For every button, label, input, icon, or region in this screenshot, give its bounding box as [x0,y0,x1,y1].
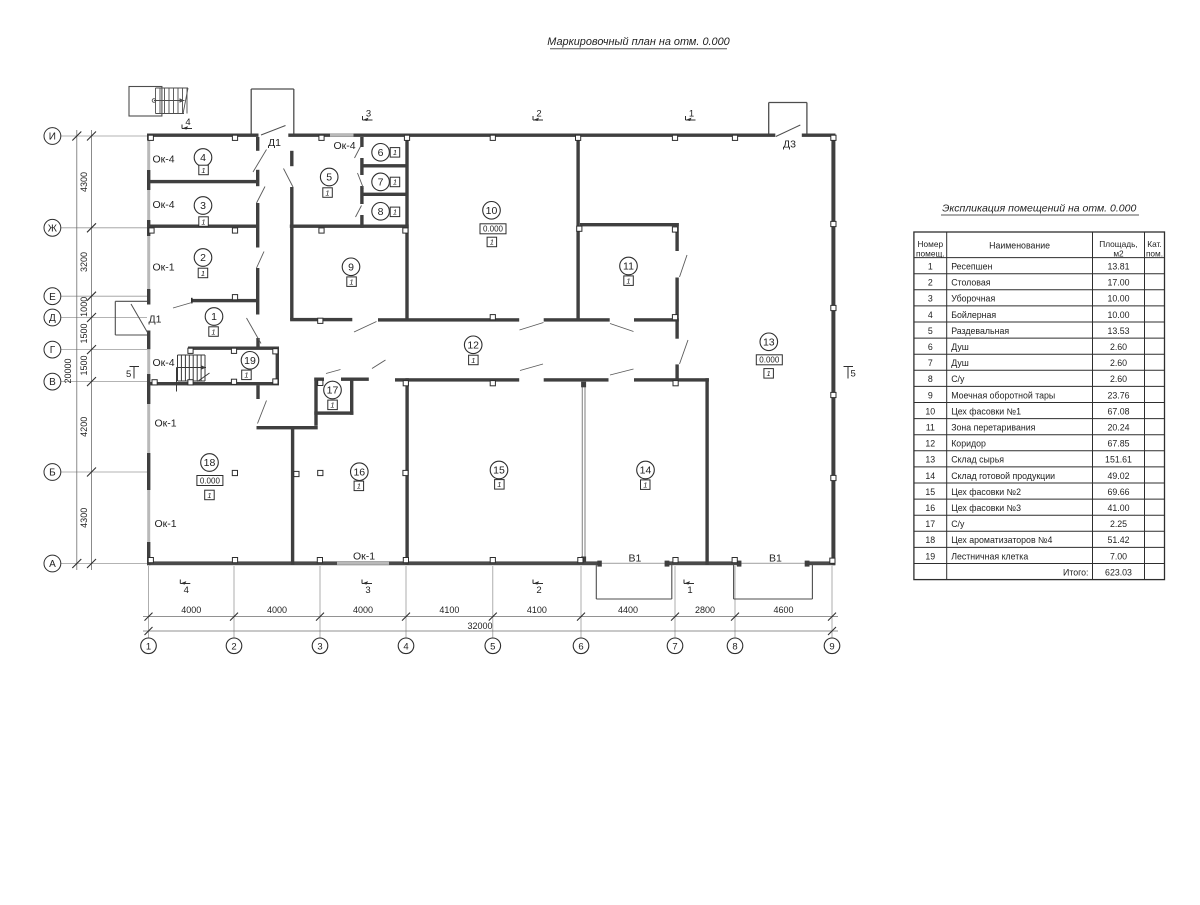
svg-text:Душ: Душ [951,358,969,368]
svg-text:5: 5 [126,369,131,380]
svg-text:16: 16 [925,503,935,513]
svg-text:3: 3 [928,294,933,304]
svg-text:4600: 4600 [773,605,793,615]
svg-text:2.25: 2.25 [1110,519,1127,529]
svg-text:Ок-4: Ок-4 [153,357,175,369]
svg-text:1: 1 [471,356,475,365]
svg-text:4400: 4400 [618,605,638,615]
svg-text:1: 1 [393,208,397,217]
svg-text:18: 18 [204,457,216,469]
svg-text:Цех фасовки №3: Цех фасовки №3 [951,503,1021,513]
svg-text:4200: 4200 [79,417,89,437]
svg-text:Ок-1: Ок-1 [155,418,177,430]
svg-text:9: 9 [829,641,834,652]
svg-text:0.000: 0.000 [759,356,780,365]
svg-text:12: 12 [925,439,935,449]
svg-text:2: 2 [536,109,541,120]
svg-text:8: 8 [732,641,737,652]
svg-text:А: А [49,559,56,570]
svg-text:14: 14 [925,471,935,481]
svg-text:15: 15 [493,465,505,477]
svg-text:помещ.: помещ. [916,248,945,258]
svg-text:Г: Г [50,345,56,356]
svg-text:13.53: 13.53 [1107,326,1129,336]
svg-text:16: 16 [353,466,365,478]
svg-text:3: 3 [200,200,206,212]
svg-text:Е: Е [49,292,56,303]
svg-text:1: 1 [687,585,692,596]
svg-text:5: 5 [851,369,856,380]
svg-text:Ок-4: Ок-4 [334,140,356,152]
svg-text:4100: 4100 [439,605,459,615]
svg-text:Ок-1: Ок-1 [353,551,375,563]
svg-text:Раздевальная: Раздевальная [951,326,1009,336]
svg-text:Моечная оборотной тары: Моечная оборотной тары [951,390,1055,400]
svg-text:1: 1 [201,269,205,278]
svg-text:Наименование: Наименование [989,241,1050,251]
svg-text:С/у: С/у [951,519,965,529]
svg-text:1: 1 [643,481,647,490]
svg-text:17: 17 [925,519,935,529]
svg-text:1000: 1000 [79,297,89,317]
svg-text:13: 13 [763,336,775,348]
svg-text:1: 1 [211,327,215,336]
svg-text:И: И [49,132,56,143]
svg-text:Д3: Д3 [783,139,796,151]
svg-text:2.60: 2.60 [1110,374,1127,384]
svg-text:3: 3 [365,585,370,596]
svg-text:В1: В1 [629,553,642,565]
svg-text:Уборочная: Уборочная [951,294,995,304]
svg-text:1: 1 [928,262,933,272]
svg-text:Ок-1: Ок-1 [153,262,175,274]
svg-text:1: 1 [689,109,694,120]
svg-text:4000: 4000 [353,605,373,615]
svg-text:Д: Д [49,313,56,324]
svg-text:Экспликация помещений на отм.: Экспликация помещений на отм. 0.000 [942,203,1136,215]
svg-text:Цех фасовки №2: Цех фасовки №2 [951,487,1021,497]
svg-text:1: 1 [349,278,353,287]
svg-text:19: 19 [925,551,935,561]
svg-text:9: 9 [928,390,933,400]
svg-text:1: 1 [201,217,205,226]
svg-text:Д1: Д1 [268,137,281,149]
svg-text:3200: 3200 [79,252,89,272]
svg-text:3: 3 [317,641,322,652]
svg-text:14: 14 [640,465,652,477]
svg-text:7.00: 7.00 [1110,551,1127,561]
svg-text:В1: В1 [769,553,782,565]
svg-text:10: 10 [925,406,935,416]
svg-text:0.000: 0.000 [483,225,504,234]
svg-text:4300: 4300 [79,172,89,192]
svg-text:11: 11 [623,261,634,273]
svg-text:1500: 1500 [79,355,89,375]
svg-text:4000: 4000 [267,605,287,615]
svg-text:4: 4 [184,585,189,596]
svg-text:0.000: 0.000 [200,476,221,485]
svg-text:1500: 1500 [79,323,89,343]
svg-text:2: 2 [928,278,933,288]
svg-text:1: 1 [357,482,361,491]
svg-text:Зона перетаривания: Зона перетаривания [951,423,1035,433]
svg-text:Маркировочный план на отм. 0.0: Маркировочный план на отм. 0.000 [547,36,729,48]
svg-text:1: 1 [211,311,217,323]
svg-text:6: 6 [378,147,384,159]
svg-text:41.00: 41.00 [1107,503,1129,513]
svg-text:1: 1 [244,371,248,380]
svg-text:4: 4 [928,310,933,320]
svg-text:8: 8 [928,374,933,384]
svg-text:Ресепшен: Ресепшен [951,262,992,272]
svg-text:17: 17 [327,385,339,397]
svg-text:69.66: 69.66 [1107,487,1129,497]
svg-text:1: 1 [393,178,397,187]
svg-text:Б: Б [49,468,56,479]
svg-text:4100: 4100 [527,605,547,615]
svg-text:2: 2 [200,252,206,264]
svg-text:10.00: 10.00 [1107,294,1129,304]
svg-text:1: 1 [325,188,329,197]
svg-text:Итого:: Итого: [1063,567,1089,577]
svg-text:Ок-1: Ок-1 [155,518,177,530]
svg-text:13.81: 13.81 [1107,262,1129,272]
svg-text:Коридор: Коридор [951,439,986,449]
svg-text:67.08: 67.08 [1107,406,1129,416]
svg-text:6: 6 [578,641,583,652]
svg-text:5: 5 [490,641,495,652]
svg-text:1: 1 [490,238,494,247]
svg-text:15: 15 [925,487,935,497]
svg-text:19: 19 [244,355,256,367]
svg-text:Ж: Ж [48,223,58,234]
svg-text:Склад готовой продукции: Склад готовой продукции [951,471,1055,481]
svg-text:Д1: Д1 [149,314,162,326]
svg-text:1: 1 [393,148,397,157]
svg-text:12: 12 [467,339,479,351]
svg-text:Цех фасовки №1: Цех фасовки №1 [951,406,1021,416]
svg-text:м2: м2 [1113,248,1124,258]
svg-text:49.02: 49.02 [1107,471,1129,481]
svg-text:Цех ароматизаторов №4: Цех ароматизаторов №4 [951,535,1052,545]
svg-text:Ок-4: Ок-4 [153,154,175,166]
svg-text:623.03: 623.03 [1105,567,1132,577]
svg-text:Бойлерная: Бойлерная [951,310,996,320]
svg-text:3: 3 [366,109,371,120]
svg-text:32000: 32000 [467,621,492,631]
svg-text:Душ: Душ [951,342,969,352]
svg-text:1: 1 [330,401,334,410]
svg-text:51.42: 51.42 [1107,535,1129,545]
svg-text:1: 1 [146,641,151,652]
svg-text:2.60: 2.60 [1110,342,1127,352]
svg-text:6: 6 [928,342,933,352]
svg-text:1: 1 [626,277,630,286]
svg-text:Столовая: Столовая [951,278,991,288]
svg-text:20000: 20000 [63,358,73,383]
svg-text:1: 1 [201,166,205,175]
svg-text:13: 13 [925,455,935,465]
svg-text:4: 4 [403,641,408,652]
svg-text:11: 11 [926,423,935,433]
svg-text:4: 4 [185,117,190,128]
svg-text:67.85: 67.85 [1107,439,1129,449]
svg-text:151.61: 151.61 [1105,455,1132,465]
svg-text:В: В [49,377,56,388]
svg-text:пом.: пом. [1146,248,1163,258]
svg-text:8: 8 [378,206,384,218]
svg-text:С/у: С/у [951,374,965,384]
svg-text:17.00: 17.00 [1107,278,1129,288]
svg-text:4: 4 [200,152,206,164]
svg-text:4000: 4000 [181,605,201,615]
svg-text:5: 5 [928,326,933,336]
svg-text:Ок-4: Ок-4 [153,199,175,211]
svg-text:1: 1 [497,480,501,489]
svg-text:18: 18 [925,535,935,545]
svg-text:Склад сырья: Склад сырья [951,455,1004,465]
svg-text:7: 7 [672,641,677,652]
svg-text:5: 5 [326,172,332,184]
svg-text:7: 7 [378,177,384,189]
svg-text:2: 2 [231,641,236,652]
svg-text:20.24: 20.24 [1107,423,1129,433]
svg-text:Лестничная клетка: Лестничная клетка [951,551,1028,561]
svg-text:23.76: 23.76 [1107,390,1129,400]
svg-text:9: 9 [348,261,354,273]
svg-text:1: 1 [207,491,211,500]
svg-text:2.60: 2.60 [1110,358,1127,368]
svg-text:10.00: 10.00 [1107,310,1129,320]
svg-text:2800: 2800 [695,605,715,615]
svg-text:2: 2 [536,585,541,596]
svg-text:10: 10 [486,205,498,217]
svg-text:7: 7 [928,358,933,368]
svg-text:1: 1 [767,369,771,378]
svg-text:4300: 4300 [79,508,89,528]
